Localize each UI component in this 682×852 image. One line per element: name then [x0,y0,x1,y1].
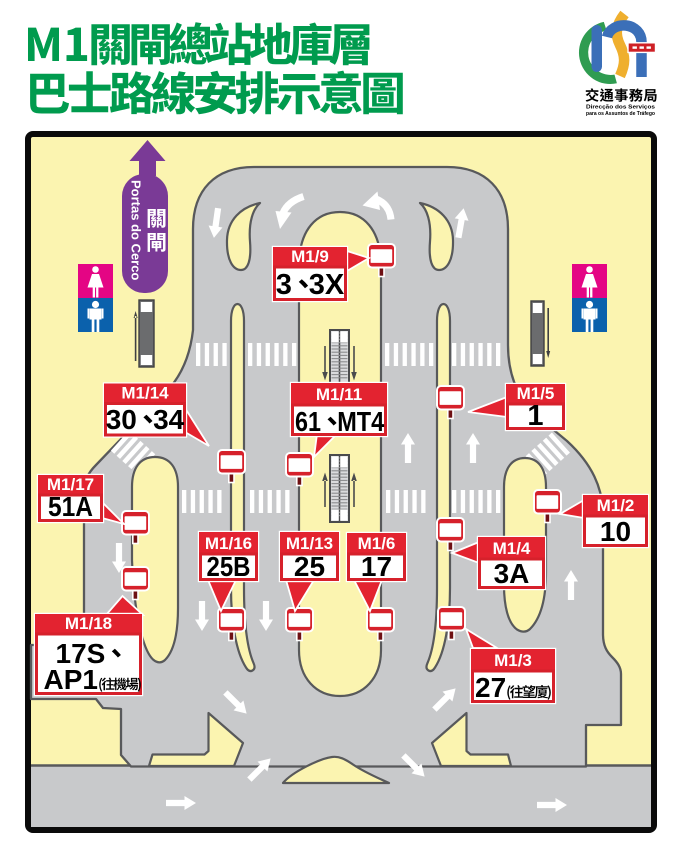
svg-text:AP1: AP1 [44,664,98,695]
svg-text:34: 34 [153,404,185,435]
svg-text:51A: 51A [48,491,93,522]
svg-text:M1/4: M1/4 [493,539,531,558]
svg-text:1: 1 [527,400,543,432]
svg-text:MT4: MT4 [337,406,384,437]
svg-text:25: 25 [294,551,325,582]
svg-text:10: 10 [600,516,631,547]
svg-text:M1/14: M1/14 [121,384,169,403]
svg-text:Direcção dos Serviços: Direcção dos Serviços [586,105,655,111]
svg-text:Portas do Cerco: Portas do Cerco [129,180,144,280]
svg-text:3: 3 [276,269,292,301]
svg-text:61: 61 [295,406,321,437]
svg-text:27: 27 [475,672,506,703]
svg-text:30: 30 [106,404,137,435]
svg-text:17: 17 [361,551,392,582]
svg-text:para os Assuntos de Tráfego: para os Assuntos de Tráfego [586,111,656,117]
svg-text:M1/18: M1/18 [65,614,112,633]
svg-text:M1/3: M1/3 [494,651,532,670]
svg-text:3A: 3A [494,558,530,589]
svg-text:25B: 25B [207,551,251,582]
svg-text:M1/2: M1/2 [597,496,635,515]
svg-text:M1/11: M1/11 [316,385,362,404]
svg-text:3X: 3X [309,269,345,301]
svg-text:M1/9: M1/9 [291,247,329,266]
